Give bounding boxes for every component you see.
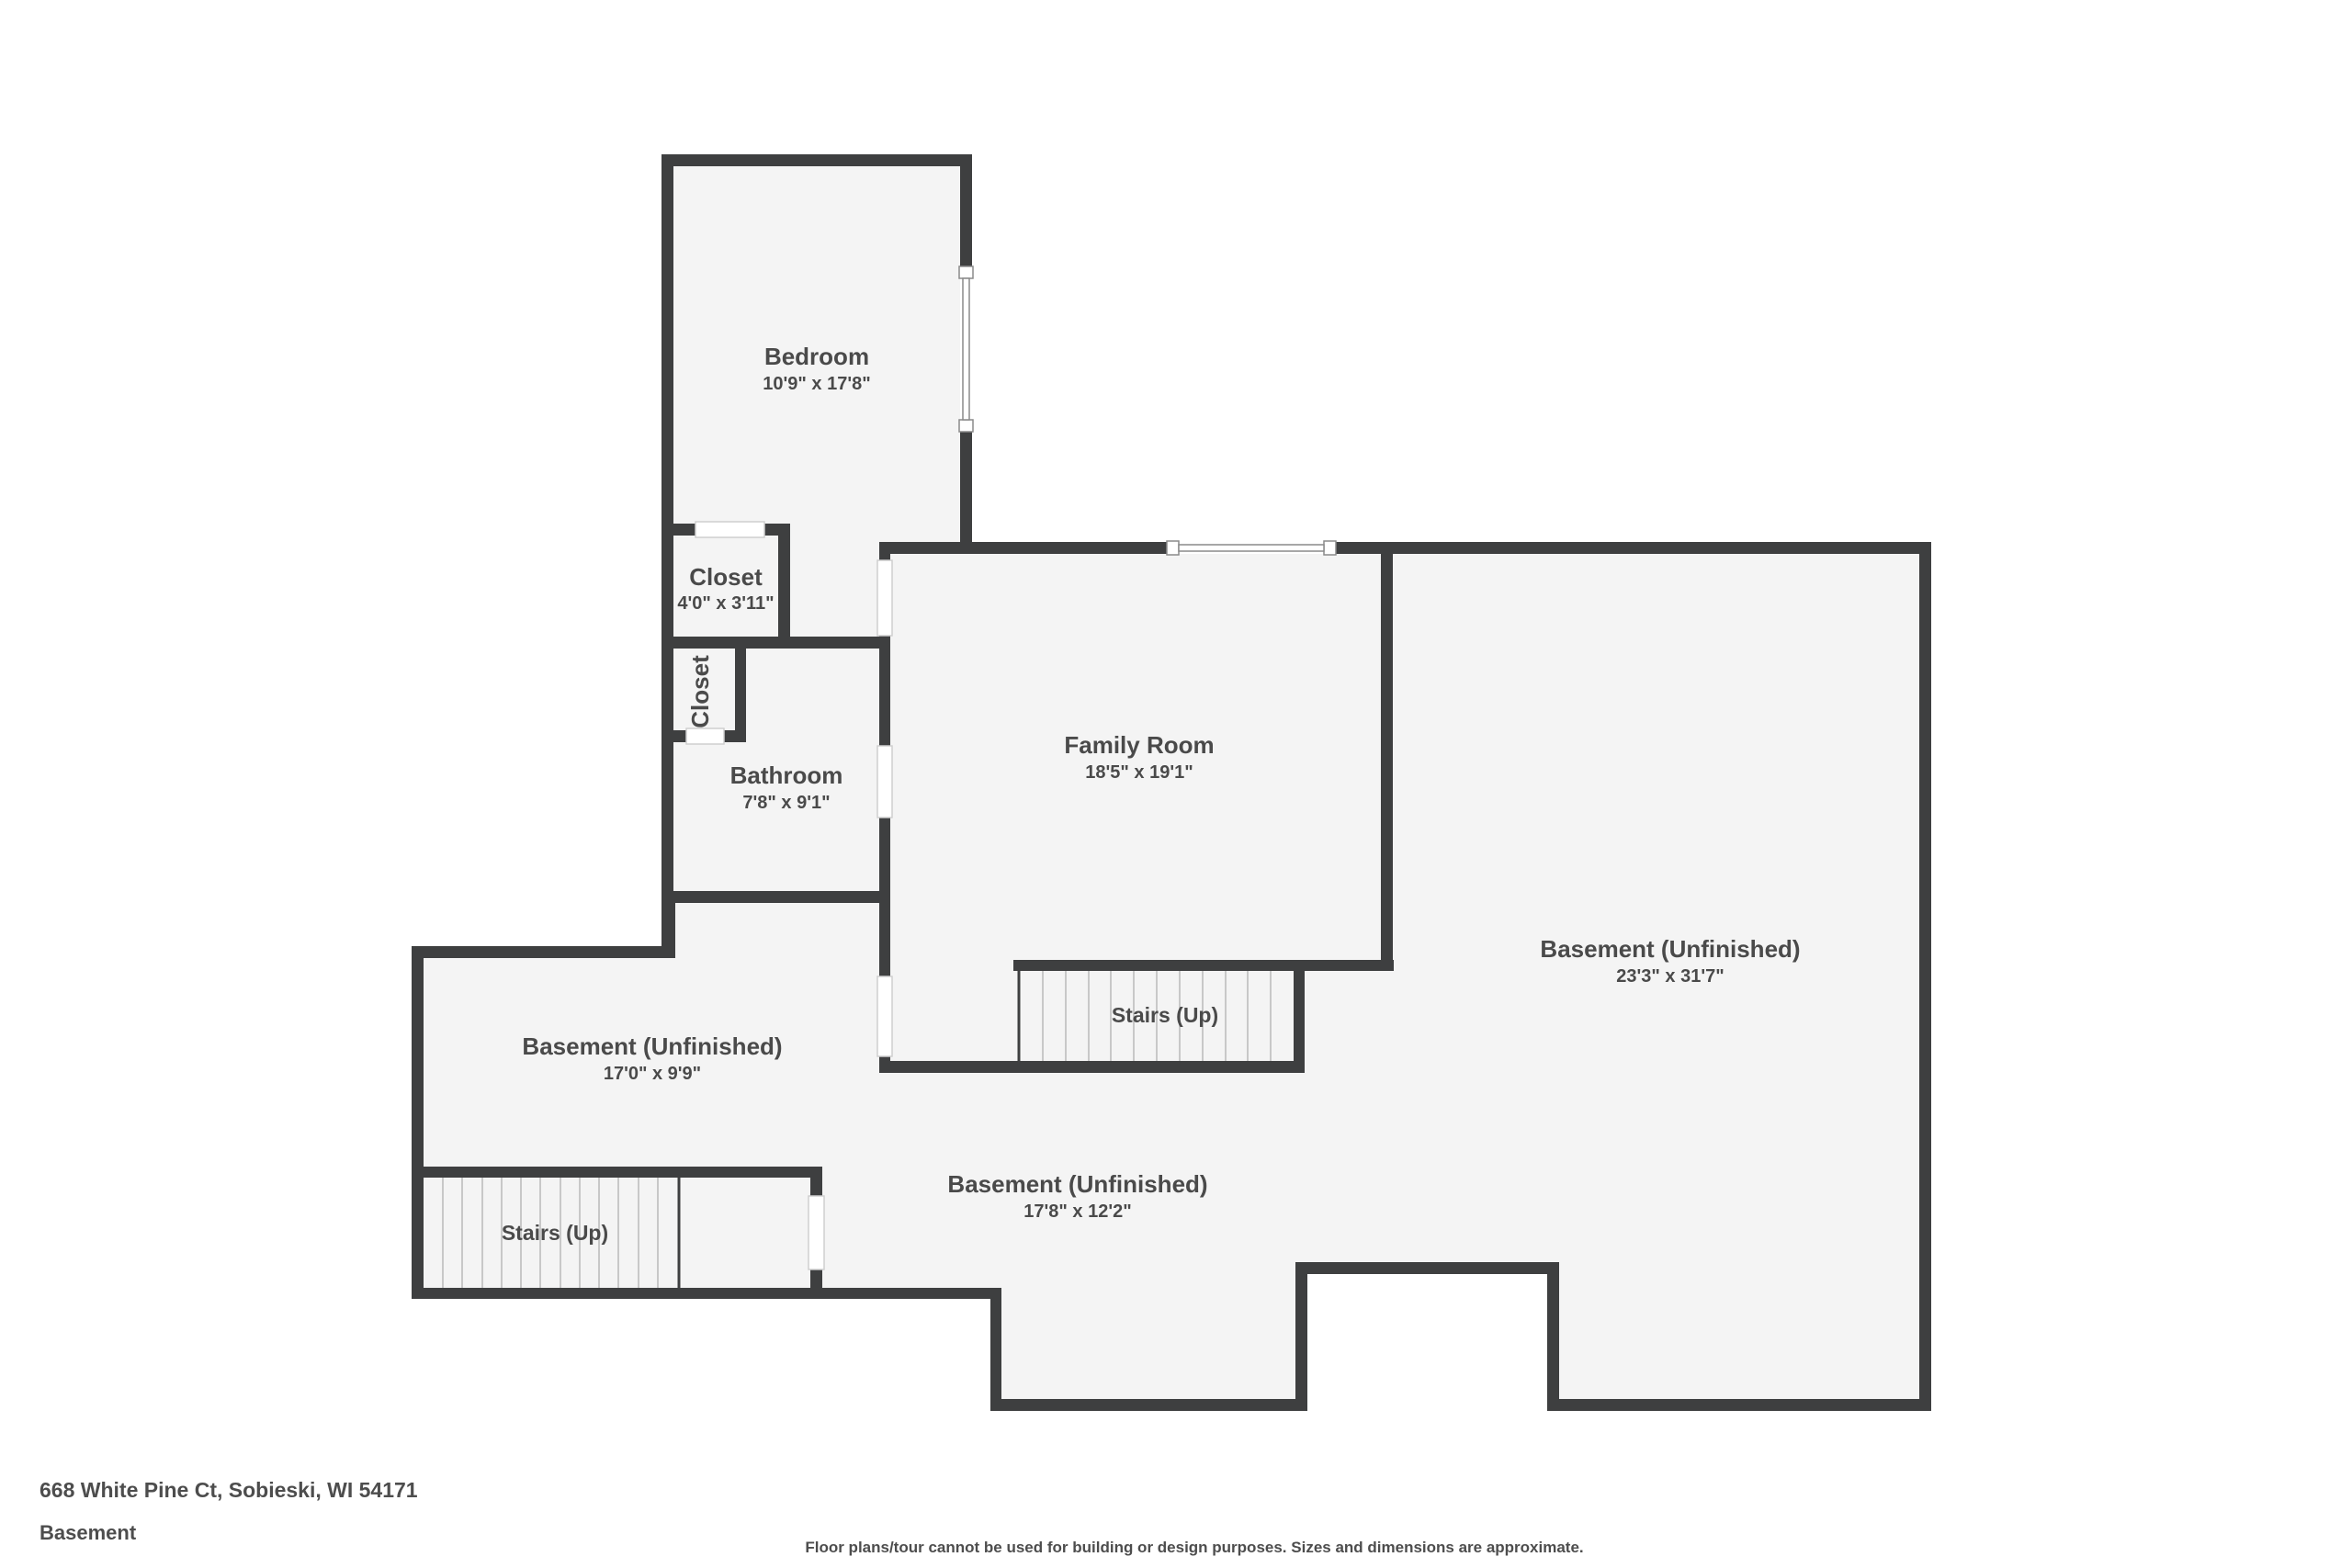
window-pane <box>963 278 969 420</box>
label-closet: Closet <box>689 563 763 591</box>
label-basement-middle-dims: 17'8" x 12'2" <box>1023 1201 1131 1222</box>
label-family-room-dims: 18'5" x 19'1" <box>1085 762 1193 783</box>
window-cap <box>1324 541 1336 555</box>
wall-right-outer <box>1919 542 1931 1411</box>
floor-plan: Bedroom 10'9" x 17'8" Closet 4'0" x 3'11… <box>0 0 2352 1568</box>
wall-bathroom-bottom <box>661 891 890 903</box>
wall-step <box>990 1288 1001 1411</box>
bedroom-window <box>959 266 973 432</box>
address-text: 668 White Pine Ct, Sobieski, WI 54171 <box>40 1478 418 1502</box>
wall-bottom-right <box>1547 1399 1931 1411</box>
wall-closet-bottom <box>661 637 890 649</box>
wall-family-right <box>1381 542 1393 971</box>
wall-bedroom-top <box>661 154 972 166</box>
window-cap <box>959 420 973 432</box>
label-basement-left: Basement (Unfinished) <box>522 1032 782 1060</box>
wall-midstairs-bottom <box>879 1061 1305 1073</box>
wall-family-bottom <box>1013 960 1394 971</box>
wall-bottomstairs-top <box>412 1167 822 1178</box>
label-closet-small: Closet <box>686 655 714 728</box>
familyroom-window <box>1167 541 1336 555</box>
door-closet <box>695 522 764 537</box>
disclaimer-text: Floor plans/tour cannot be used for buil… <box>805 1539 1583 1556</box>
door-bottomstairs <box>808 1196 824 1269</box>
wall-west <box>661 154 673 958</box>
window-cap <box>1167 541 1179 555</box>
label-basement-left-dims: 17'0" x 9'9" <box>604 1064 701 1084</box>
label-stairs-bottom: Stairs (Up) <box>502 1221 608 1245</box>
label-bedroom-dims: 10'9" x 17'8" <box>763 374 870 394</box>
wall-closet-right <box>778 524 790 649</box>
window-cap <box>959 266 973 278</box>
floor-area <box>412 154 1931 1411</box>
label-basement-middle: Basement (Unfinished) <box>947 1170 1207 1198</box>
wall-notch-top <box>1295 1262 1559 1274</box>
wall-left-outer <box>412 946 424 1299</box>
label-bedroom: Bedroom <box>764 343 869 370</box>
door-family-upper <box>877 560 892 636</box>
door-bathroom <box>877 746 892 818</box>
label-basement-right-dims: 23'3" x 31'7" <box>1616 966 1724 987</box>
label-closet-dims: 4'0" x 3'11" <box>677 593 774 614</box>
wall-notch-left <box>1295 1262 1307 1411</box>
wall-notch-right <box>1547 1262 1559 1411</box>
wall-bottom-middle <box>990 1399 1307 1411</box>
label-bathroom: Bathroom <box>730 761 843 789</box>
door-family-lower <box>877 976 892 1056</box>
label-family-room: Family Room <box>1064 731 1214 759</box>
wall-midstairs-right <box>1294 960 1305 1073</box>
label-basement-right: Basement (Unfinished) <box>1540 935 1800 963</box>
wall-left-bottom <box>412 1288 1001 1299</box>
floor-name-text: Basement <box>40 1521 137 1544</box>
window-pane <box>1179 545 1324 551</box>
label-stairs-middle: Stairs (Up) <box>1112 1003 1218 1027</box>
wall-main-top <box>879 542 1931 554</box>
wall-leftbasement-top <box>412 946 675 958</box>
door-closet-small <box>686 728 724 744</box>
wall-closet2-right <box>735 637 746 742</box>
label-bathroom-dims: 7'8" x 9'1" <box>742 793 830 813</box>
wall-connector <box>663 903 675 958</box>
